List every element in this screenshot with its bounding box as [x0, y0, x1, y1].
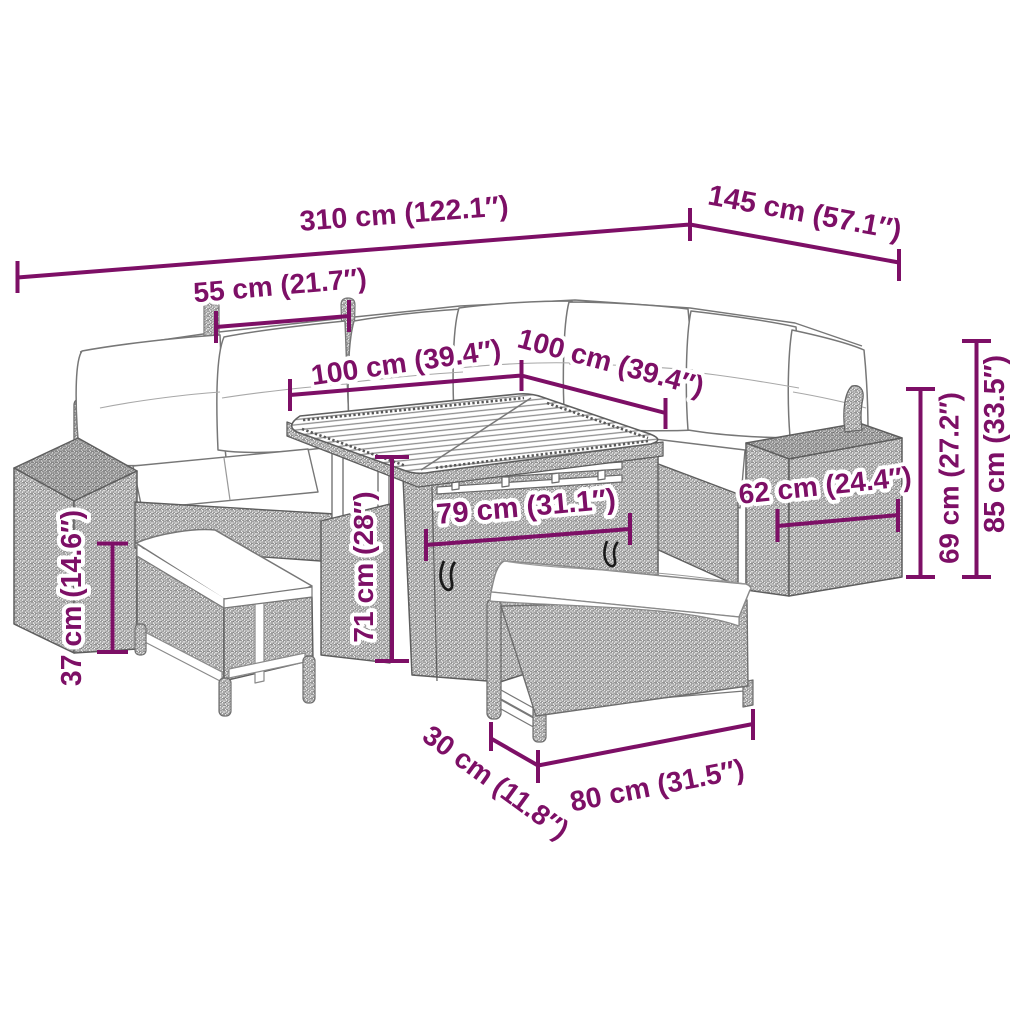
svg-text:37 cm (14.6″): 37 cm (14.6″)	[56, 510, 88, 686]
svg-text:71 cm (28″): 71 cm (28″)	[347, 491, 379, 642]
svg-text:85 cm (33.5″): 85 cm (33.5″)	[979, 355, 1011, 533]
svg-text:69 cm (27.2″): 69 cm (27.2″)	[934, 392, 965, 564]
